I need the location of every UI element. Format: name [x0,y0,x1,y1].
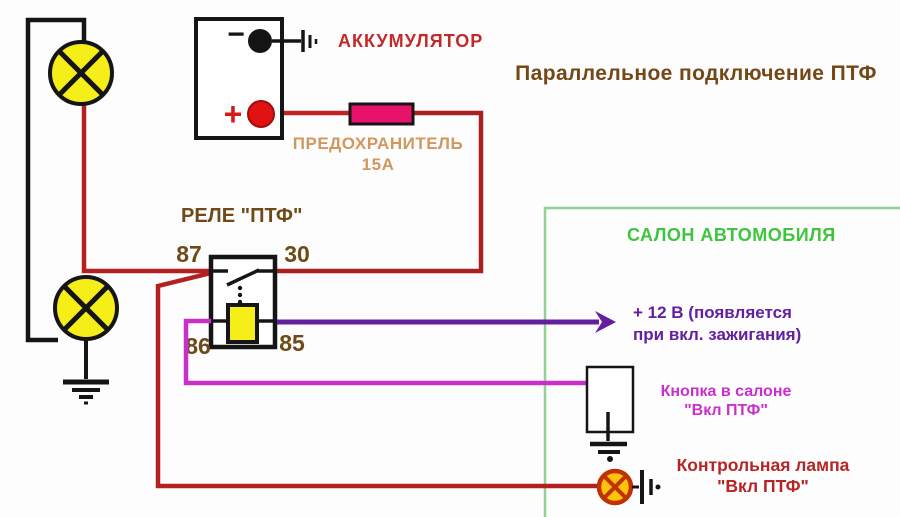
indicator-lamp-icon [599,471,639,503]
battery-minus-sign: − [227,18,245,51]
salon-label-text: САЛОН АВТОМОБИЛЯ [627,225,836,246]
battery-plus-sign: + [224,96,243,132]
salon-button-symbol [587,367,633,441]
relay-label-text: РЕЛЕ "ПТФ" [181,205,302,228]
relay-pin-85-label: 85 [279,330,305,356]
relay-label: РЕЛЕ "ПТФ" [181,205,302,228]
ground-icon [63,339,109,403]
page-title: Параллельное подключение ПТФ [500,62,892,86]
ignition-12v-label: + 12 В (появляется при вкл. зажигания) [633,302,801,346]
battery-symbol: − + [196,18,301,138]
ground-icon [303,30,316,52]
battery-label-text: АККУМУЛЯТОР [338,31,483,52]
fuse-label-text: ПРЕДОХРАНИТЕЛЬ [282,133,474,154]
battery-plus-terminal [248,101,274,127]
battery-minus-terminal [248,29,272,53]
fuse-symbol [350,104,413,124]
fog-lamp-icon [55,277,117,339]
ignition-label-line1: + 12 В (появляется [633,302,801,324]
ground-icon [642,470,661,504]
ignition-label-line2: при вкл. зажигания) [633,324,801,346]
indicator-lamp-label-line2: "Вкл ПТФ" [666,476,860,497]
relay-symbol: 87 30 86 85 [176,241,310,359]
battery-label: АККУМУЛЯТОР [338,31,483,52]
relay-pin-86-label: 86 [185,333,211,359]
fuse-label: ПРЕДОХРАНИТЕЛЬ 15А [282,133,474,175]
page-title-text: Параллельное подключение ПТФ [500,62,892,86]
salon-button-label-line2: "Вкл ПТФ" [645,401,807,420]
fuse-rating-text: 15А [282,154,474,175]
relay-pin-30-label: 30 [284,241,310,267]
indicator-lamp-label: Контрольная лампа "Вкл ПТФ" [666,455,860,497]
ignition-wire-purple [277,311,616,333]
indicator-lamp-label-line1: Контрольная лампа [666,455,860,476]
relay-coil [228,305,257,342]
fog-lamp-icon [50,42,112,104]
salon-button-label: Кнопка в салоне "Вкл ПТФ" [645,382,807,420]
salon-button-label-line1: Кнопка в салоне [645,382,807,401]
relay-pin-87-label: 87 [176,241,202,267]
ground-icon [590,444,627,462]
wiring-diagram: − + 87 30 86 85 [0,0,900,517]
salon-region-label: САЛОН АВТОМОБИЛЯ [627,225,836,246]
